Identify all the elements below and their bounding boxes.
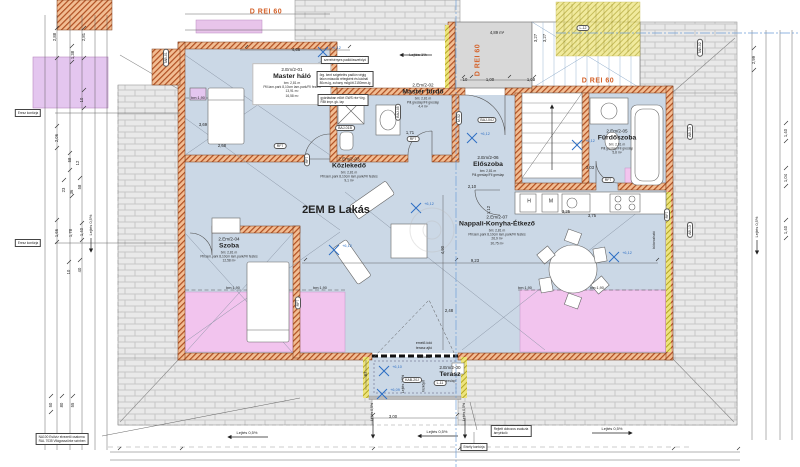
bathtub (631, 105, 663, 185)
coffee-table (391, 224, 427, 258)
toilet (340, 132, 353, 150)
terrace-floor (369, 357, 461, 398)
cooktop (610, 194, 640, 212)
bath-toilet (605, 132, 619, 150)
shaft-area (455, 22, 532, 88)
interior-stairs (522, 93, 582, 178)
dishwasher (542, 194, 558, 212)
master-bed (208, 88, 244, 144)
shaft-and-stairwell (455, 2, 640, 88)
detail-block (33, 57, 108, 108)
kitchen-counter (515, 192, 666, 214)
dresser (212, 218, 240, 233)
nightstand (190, 88, 206, 100)
floor-plan-drawing: 2EM B LakásD REI 60D REI 60D REI 602,882… (0, 0, 800, 467)
construction-note-area (556, 2, 640, 56)
dining-table (549, 245, 597, 293)
fridge (520, 194, 536, 212)
plan-linework (0, 0, 800, 467)
